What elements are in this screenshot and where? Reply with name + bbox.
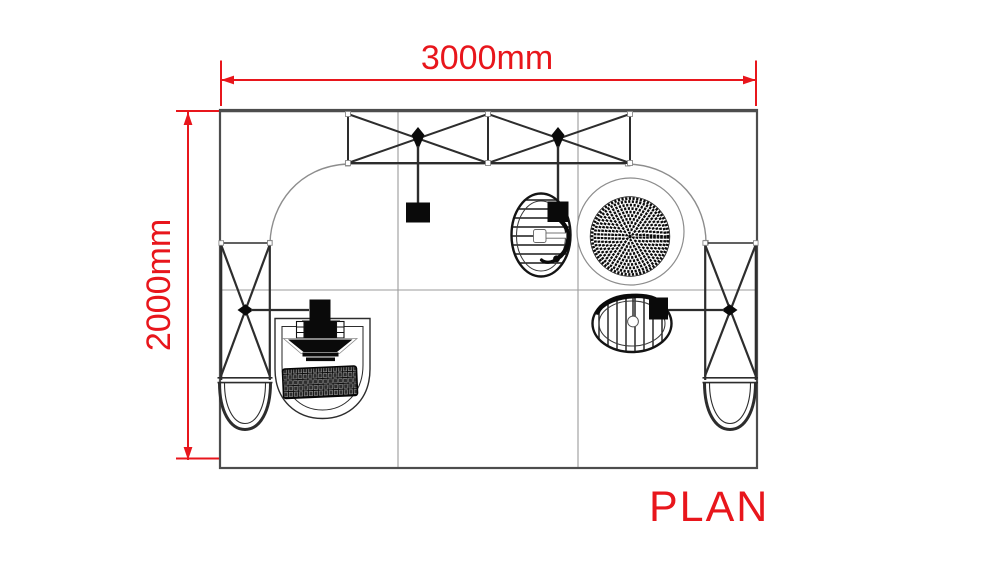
plan-drawing: 3000mm 2000mm PLAN [0, 0, 1000, 563]
chair-right [593, 295, 672, 352]
width-dimension-label: 3000mm [377, 41, 597, 75]
spotlight-head [649, 298, 668, 320]
round-table [577, 178, 684, 285]
spotlight-head [548, 202, 569, 223]
keyboard [282, 366, 357, 399]
top-truss-beam [346, 112, 633, 166]
monitor [284, 300, 358, 362]
height-dimension-line [176, 111, 219, 460]
right-podium-bowl [705, 383, 756, 430]
hanging-spotlight-right [552, 127, 565, 203]
left-podium-bowl [220, 383, 271, 430]
height-dimension-label: 2000mm [142, 219, 176, 351]
right-side-truss [668, 241, 758, 383]
plan-title: PLAN [649, 486, 769, 529]
chair-top [510, 194, 572, 277]
left-side-truss [218, 241, 310, 383]
